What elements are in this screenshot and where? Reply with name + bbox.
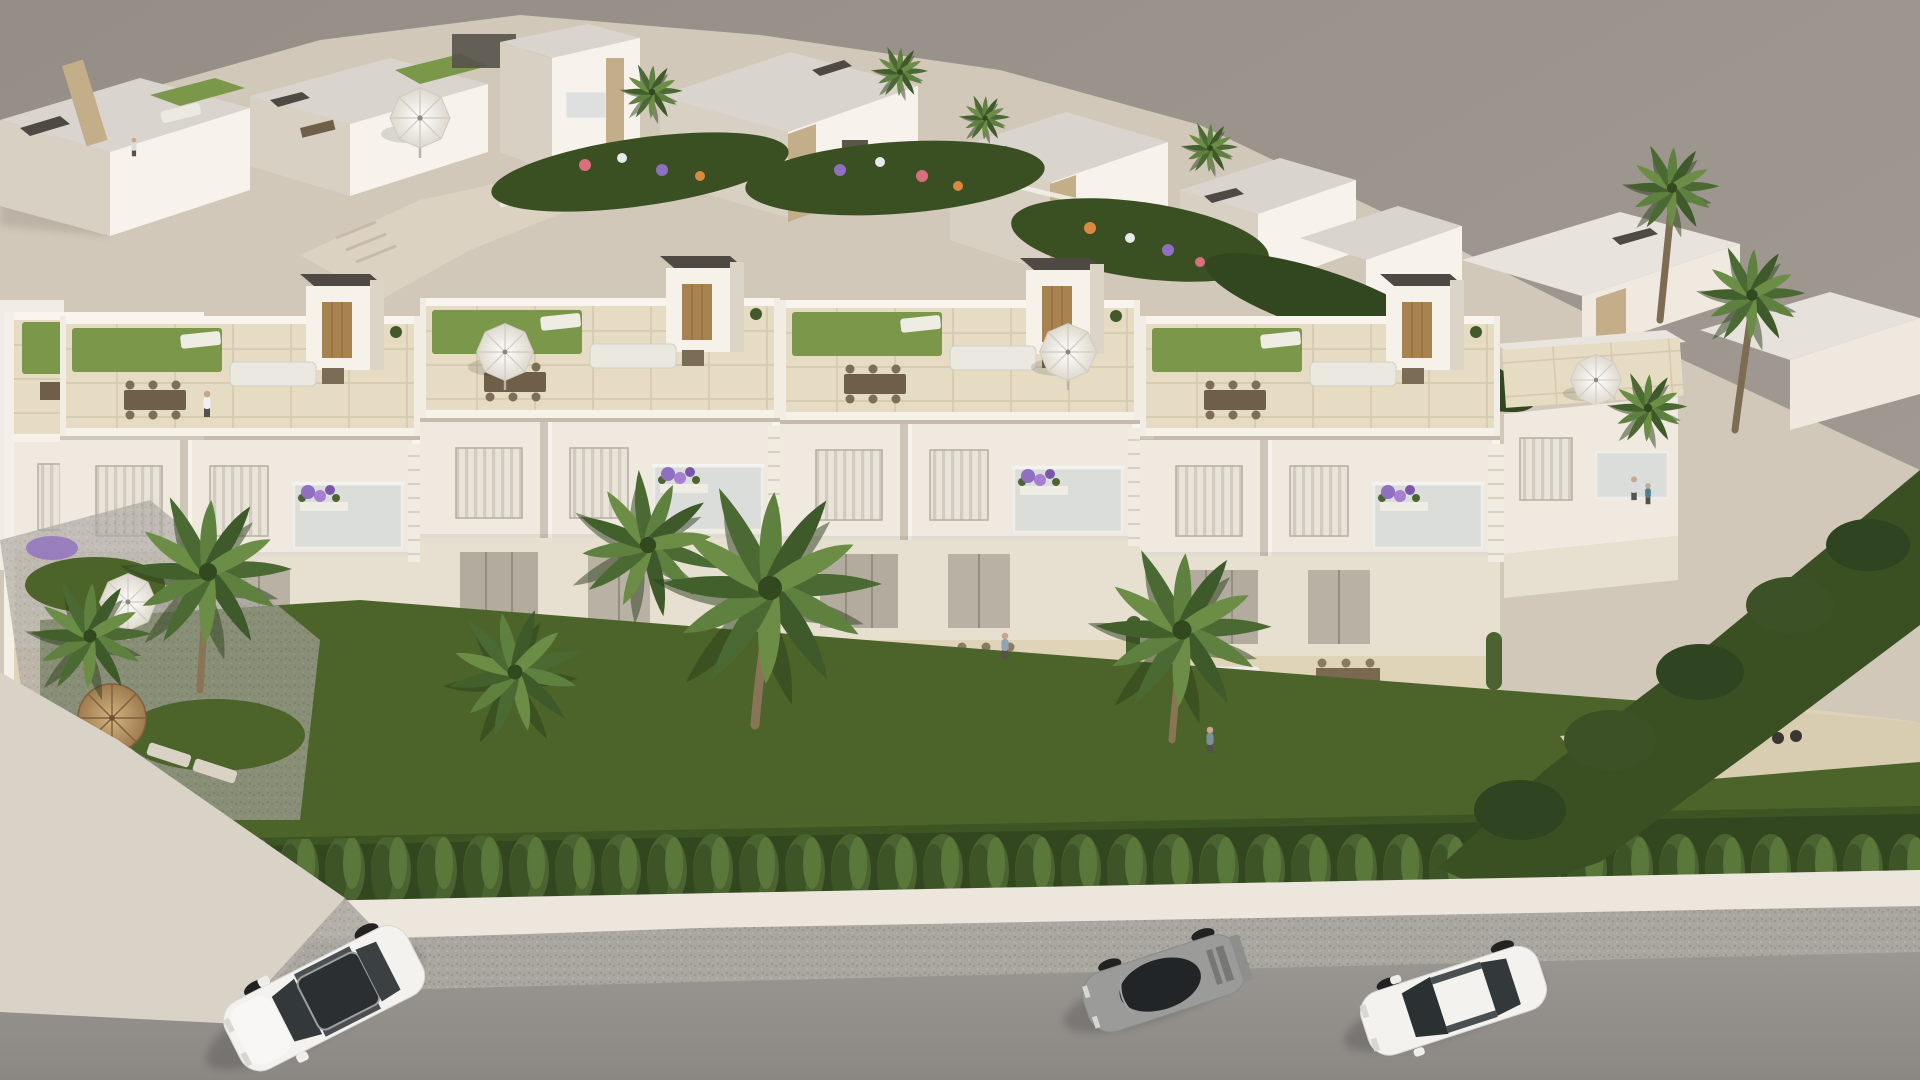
stone-accent: [606, 58, 624, 150]
shuttered-window: [1520, 438, 1572, 500]
aerial-render: [0, 0, 1920, 1080]
right-wing: [1496, 330, 1686, 598]
tower-balcony: [566, 92, 606, 118]
render-canvas: [0, 0, 1920, 1080]
flower-bush: [26, 536, 78, 560]
